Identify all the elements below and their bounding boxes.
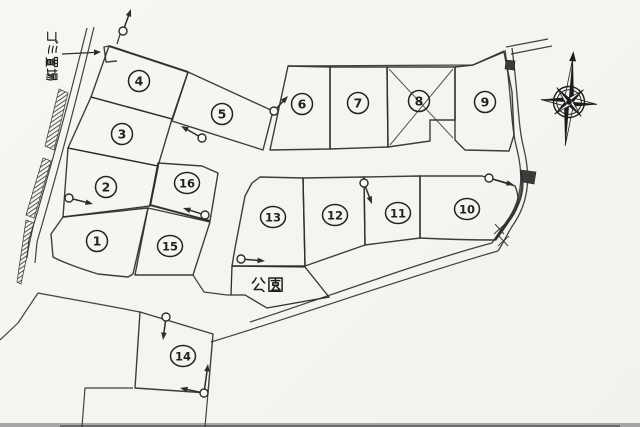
survey-point-circle: [200, 389, 208, 397]
road-edge-line: [288, 51, 504, 66]
survey-point-circle: [237, 255, 245, 263]
garbage-station-label: [46, 32, 101, 80]
retaining-wall-hatch: [505, 60, 515, 70]
survey-point-circle: [119, 27, 127, 35]
survey-point-circle: [270, 107, 278, 115]
boundary-line: [109, 46, 188, 72]
road-edge-line: [498, 48, 528, 251]
lot-number-2: 2: [96, 177, 117, 198]
svg-text:3: 3: [118, 126, 127, 141]
svg-text:11: 11: [390, 206, 406, 220]
svg-text:15: 15: [162, 239, 178, 253]
svg-text:6: 6: [298, 96, 307, 111]
road-edge-line: [492, 50, 521, 243]
road-edge-line: [0, 293, 140, 340]
road-edge-line: [35, 27, 94, 263]
lot-number-15: 15: [158, 236, 183, 257]
kanji-glyph: [46, 57, 57, 66]
kanji-glyph: [252, 278, 264, 292]
lot-number-10: 10: [455, 199, 480, 220]
lot-number-1: 1: [87, 231, 108, 252]
survey-marker: [237, 255, 265, 263]
park-outline: [231, 266, 329, 308]
svg-text:7: 7: [354, 95, 363, 110]
slope-hatch-strip: [17, 220, 34, 284]
lot-number-6: 6: [292, 94, 313, 115]
lot-number-5: 5: [212, 104, 233, 125]
survey-marker: [270, 96, 288, 115]
svg-text:1: 1: [93, 233, 102, 248]
kanji-glyph: [48, 46, 56, 54]
survey-marker: [485, 174, 514, 186]
svg-text:9: 9: [481, 94, 490, 109]
survey-point-circle: [65, 194, 73, 202]
site-plan-map: 12345678910111213141516: [0, 0, 640, 427]
garbage-label-arrow: [94, 49, 101, 55]
survey-point-circle: [201, 211, 209, 219]
svg-text:12: 12: [327, 208, 343, 222]
lot-number-13: 13: [261, 207, 286, 228]
lot-number-14: 14: [171, 346, 196, 367]
svg-text:16: 16: [179, 176, 195, 190]
lot-outline-2: [63, 148, 158, 217]
road-edge-line: [193, 275, 231, 295]
survey-point-circle: [198, 134, 206, 142]
scanned-site-plan-page: 12345678910111213141516: [0, 0, 640, 427]
survey-point-circle: [360, 179, 368, 187]
survey-marker: [360, 179, 372, 204]
lot-number-12: 12: [323, 205, 348, 226]
road-edge-line: [205, 393, 208, 427]
lot-number-11: 11: [386, 203, 411, 224]
svg-text:4: 4: [135, 73, 144, 88]
survey-point-circle: [485, 174, 493, 182]
lot-number-16: 16: [175, 173, 200, 194]
compass-north-arrowhead: [569, 51, 577, 62]
svg-text:13: 13: [265, 210, 281, 224]
svg-text:10: 10: [459, 202, 475, 216]
boundary-line: [150, 166, 158, 206]
lot-number-7: 7: [348, 93, 369, 114]
lot-number-4: 4: [129, 71, 150, 92]
road-edge-line: [82, 388, 133, 427]
survey-marker: [65, 194, 93, 205]
kanji-glyph: [269, 278, 282, 291]
survey-marker: [161, 313, 170, 340]
svg-text:5: 5: [218, 106, 227, 121]
slope-hatch-strip: [45, 89, 68, 150]
lot-number-9: 9: [475, 92, 496, 113]
svg-text:2: 2: [102, 179, 111, 194]
road-edge-line: [250, 243, 492, 322]
road-edge-line: [506, 39, 548, 47]
kanji-glyph: [46, 69, 56, 80]
svg-text:8: 8: [415, 93, 424, 108]
survey-point-circle: [162, 313, 170, 321]
survey-marker: [119, 9, 131, 35]
lot-number-3: 3: [112, 124, 133, 145]
retaining-wall-hatch: [521, 170, 536, 184]
compass-rose: [537, 49, 601, 149]
kanji-glyph: [48, 32, 58, 43]
road-edge-line: [211, 251, 498, 342]
svg-text:14: 14: [175, 349, 191, 363]
road-edge-line: [511, 46, 552, 54]
park-label: [252, 278, 282, 292]
